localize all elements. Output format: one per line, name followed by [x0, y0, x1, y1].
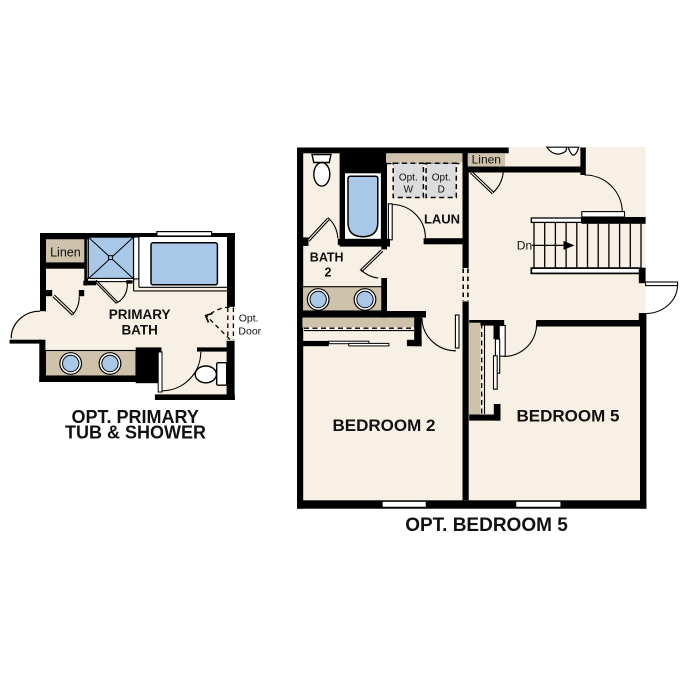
- svg-text:BEDROOM 5: BEDROOM 5: [517, 406, 620, 425]
- svg-text:D: D: [438, 184, 445, 195]
- svg-text:Opt.: Opt.: [399, 172, 418, 183]
- svg-text:BATH: BATH: [121, 323, 158, 338]
- svg-text:2: 2: [325, 266, 332, 280]
- svg-text:Opt.: Opt.: [239, 312, 259, 324]
- svg-text:PRIMARY: PRIMARY: [109, 307, 171, 322]
- svg-text:Door: Door: [238, 325, 261, 337]
- svg-text:OPT. BEDROOM 5: OPT. BEDROOM 5: [405, 515, 568, 536]
- svg-text:Linen: Linen: [472, 152, 501, 166]
- svg-text:W: W: [404, 184, 414, 195]
- svg-text:Dn: Dn: [517, 238, 532, 252]
- svg-text:LAUN: LAUN: [424, 212, 460, 227]
- svg-text:TUB & SHOWER: TUB & SHOWER: [65, 423, 206, 443]
- svg-text:BATH: BATH: [310, 250, 344, 264]
- svg-text:Linen: Linen: [50, 245, 81, 259]
- svg-text:Opt.: Opt.: [432, 172, 451, 183]
- svg-text:BEDROOM 2: BEDROOM 2: [333, 416, 436, 435]
